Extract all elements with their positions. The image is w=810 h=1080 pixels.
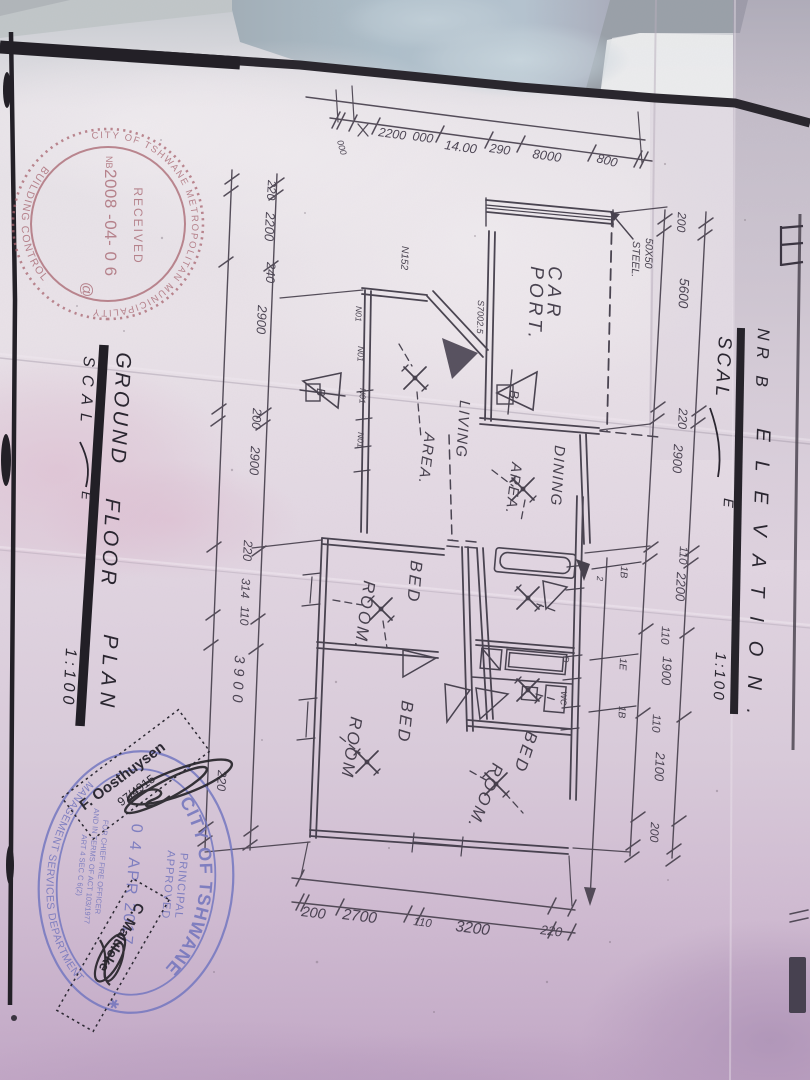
svg-text:RECEIVED: RECEIVED [131,187,145,264]
svg-text:N01: N01 [355,346,366,362]
svg-text:2: 2 [595,575,605,581]
svg-text:NB: NB [104,156,114,169]
svg-text:D: D [561,656,571,663]
svg-text:S7002.5: S7002.5 [475,300,486,335]
svg-text:200: 200 [674,211,689,233]
svg-text:N01: N01 [353,306,364,322]
svg-text:110: 110 [237,606,252,626]
svg-text:2900: 2900 [669,443,686,474]
svg-text:200: 200 [249,407,264,430]
svg-text:SCAL: SCAL [711,336,735,401]
svg-text:B: B [507,390,522,400]
svg-text:BED: BED [403,560,426,605]
svg-text:PORT.: PORT. [523,266,547,343]
svg-text:1B: 1B [618,566,629,579]
svg-text:N01: N01 [355,432,366,448]
svg-text:NR B: NR B [752,328,773,393]
svg-text:220: 220 [240,539,255,562]
svg-text:E: E [79,491,94,501]
svg-text:2200: 2200 [672,571,689,602]
svg-text:1:100: 1:100 [59,648,79,709]
svg-text:314: 314 [238,578,253,599]
svg-text:110: 110 [658,626,671,646]
svg-text:FLOOR: FLOOR [96,498,124,589]
svg-text:WC: WC [558,691,569,706]
svg-text:2200: 2200 [261,211,278,242]
svg-text:220: 220 [539,922,564,940]
svg-text:2100: 2100 [651,751,668,782]
svg-text:110: 110 [676,546,689,566]
svg-text:110: 110 [649,714,662,734]
svg-text:200: 200 [300,904,327,923]
svg-text:220: 220 [675,407,690,430]
svg-text:B: B [314,388,328,396]
svg-text:STEEL.: STEEL. [629,241,642,278]
svg-text:2008 -04- 0 6: 2008 -04- 0 6 [101,169,120,277]
svg-text:220: 220 [264,179,279,201]
svg-text:2900: 2900 [246,445,263,476]
svg-text:3900: 3900 [228,655,247,708]
svg-text:N01: N01 [357,388,368,404]
svg-text:5600: 5600 [675,278,692,309]
svg-text:1:100: 1:100 [709,652,729,703]
svg-text:200: 200 [647,821,662,843]
svg-text:1E: 1E [617,658,628,671]
svg-text:N152: N152 [398,246,410,271]
svg-text:2900: 2900 [253,304,270,335]
svg-text:000: 000 [412,129,435,146]
svg-text:50X50: 50X50 [642,238,655,269]
svg-text:110: 110 [413,916,433,930]
svg-text:1900: 1900 [658,656,675,686]
svg-text:E: E [720,498,737,509]
svg-text:@: @ [78,282,95,297]
svg-text:240: 240 [263,261,278,284]
svg-text:PLAN: PLAN [95,634,122,714]
